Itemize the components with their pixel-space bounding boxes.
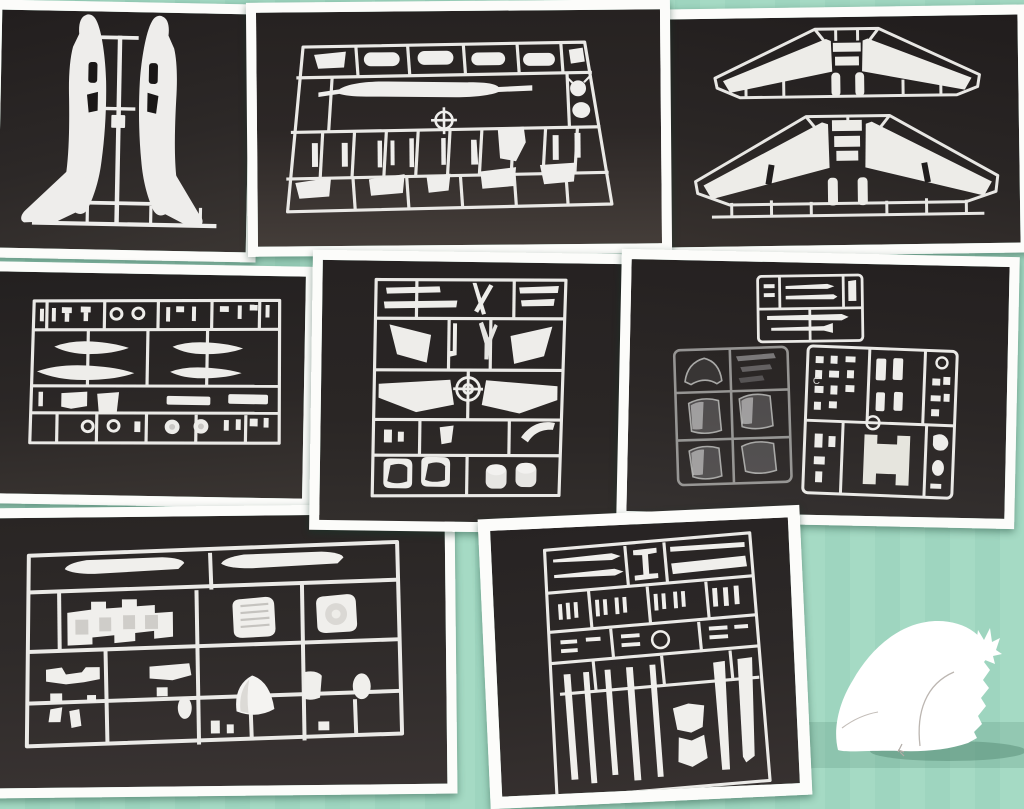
svg-text:C: C <box>813 376 821 387</box>
